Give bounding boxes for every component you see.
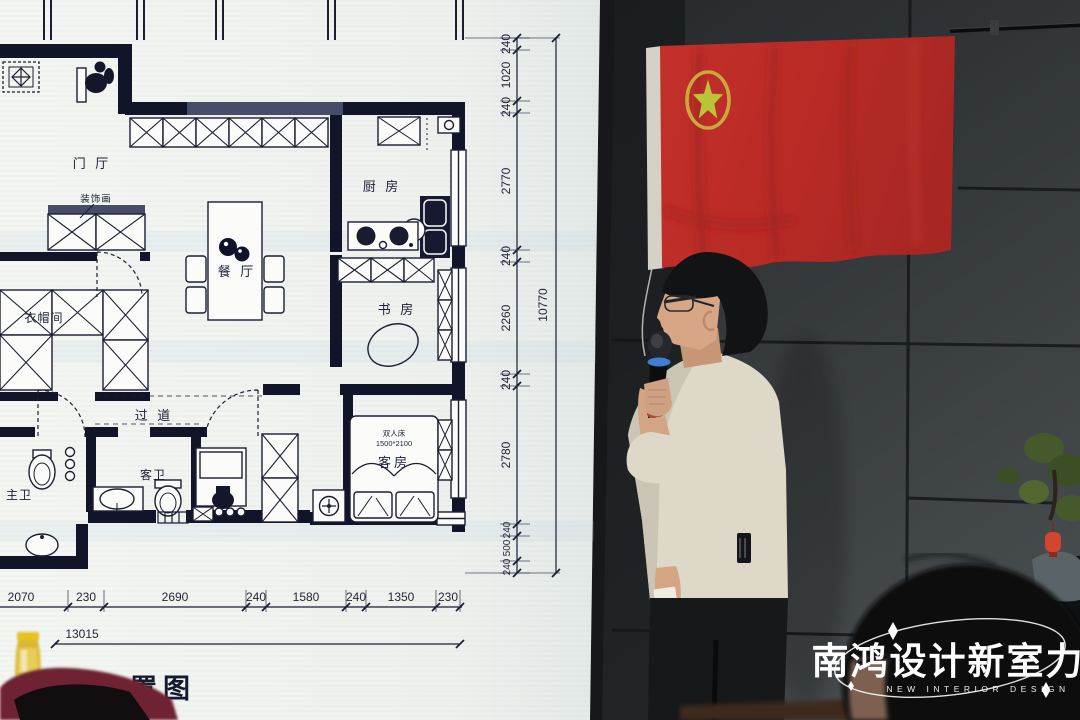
label-master-bath: 主卫 (6, 488, 32, 502)
scene: 门 厅 装饰画 餐 厅 厨 房 书 房 衣帽间 过 道 客卫 主卫 客房 双人床… (0, 0, 1080, 720)
label-guest-bath: 客卫 (140, 467, 166, 482)
label-corridor: 过 道 (135, 408, 174, 423)
svg-text:1350: 1350 (388, 590, 415, 604)
dim-total-bottom: 13015 (65, 627, 99, 641)
svg-text:230: 230 (76, 590, 96, 604)
svg-text:240: 240 (499, 97, 513, 117)
label-guest-room: 客房 (378, 455, 410, 470)
svg-text:1020: 1020 (499, 61, 513, 88)
svg-text:240: 240 (346, 590, 366, 604)
svg-text:1580: 1580 (293, 590, 320, 604)
svg-text:240: 240 (499, 246, 513, 266)
label-kitchen: 厨 房 (363, 179, 402, 194)
svg-text:240: 240 (246, 590, 266, 604)
desk-nook (193, 448, 246, 521)
bed-note-2: 1500*2100 (376, 439, 412, 448)
svg-text:2260: 2260 (499, 304, 513, 331)
north-closets (130, 118, 328, 147)
shirt-hem-tag (737, 533, 751, 563)
svg-text:230: 230 (438, 590, 458, 604)
label-decor: 装饰画 (80, 193, 112, 205)
dim-total-right: 10770 (536, 288, 550, 322)
rod-clip (990, 20, 999, 35)
watermark-title: 南鸿设计新室力 (812, 640, 1080, 682)
label-entry: 门 厅 (73, 156, 112, 171)
entry-bench (77, 68, 86, 102)
bed-note-1: 双人床 (383, 428, 406, 438)
label-cloakroom: 衣帽间 (24, 310, 63, 325)
mic-blue-band (648, 358, 671, 367)
divider-cabinets (338, 258, 434, 282)
presentation-photo: 门 厅 装饰画 餐 厅 厨 房 书 房 衣帽间 过 道 客卫 主卫 客房 双人床… (0, 0, 1080, 720)
label-dining: 餐 厅 (218, 264, 257, 279)
svg-text:500: 500 (502, 539, 513, 556)
svg-text:2780: 2780 (499, 441, 513, 468)
sleeve (627, 432, 688, 483)
decor-console (48, 204, 145, 250)
svg-text:2690: 2690 (162, 590, 189, 604)
drink-bottle (15, 632, 41, 676)
svg-text:240: 240 (499, 34, 513, 54)
bottle-cap (17, 632, 39, 641)
watermark-subtitle: NEW INTERIOR DESIGN (886, 684, 1069, 694)
label-study: 书 房 (378, 302, 417, 317)
svg-text:240: 240 (499, 370, 513, 390)
svg-text:2770: 2770 (499, 167, 513, 194)
projection-screen: 门 厅 装饰画 餐 厅 厨 房 书 房 衣帽间 过 道 客卫 主卫 客房 双人床… (0, 0, 615, 720)
svg-text:2070: 2070 (8, 590, 35, 604)
svg-text:240: 240 (502, 521, 513, 538)
